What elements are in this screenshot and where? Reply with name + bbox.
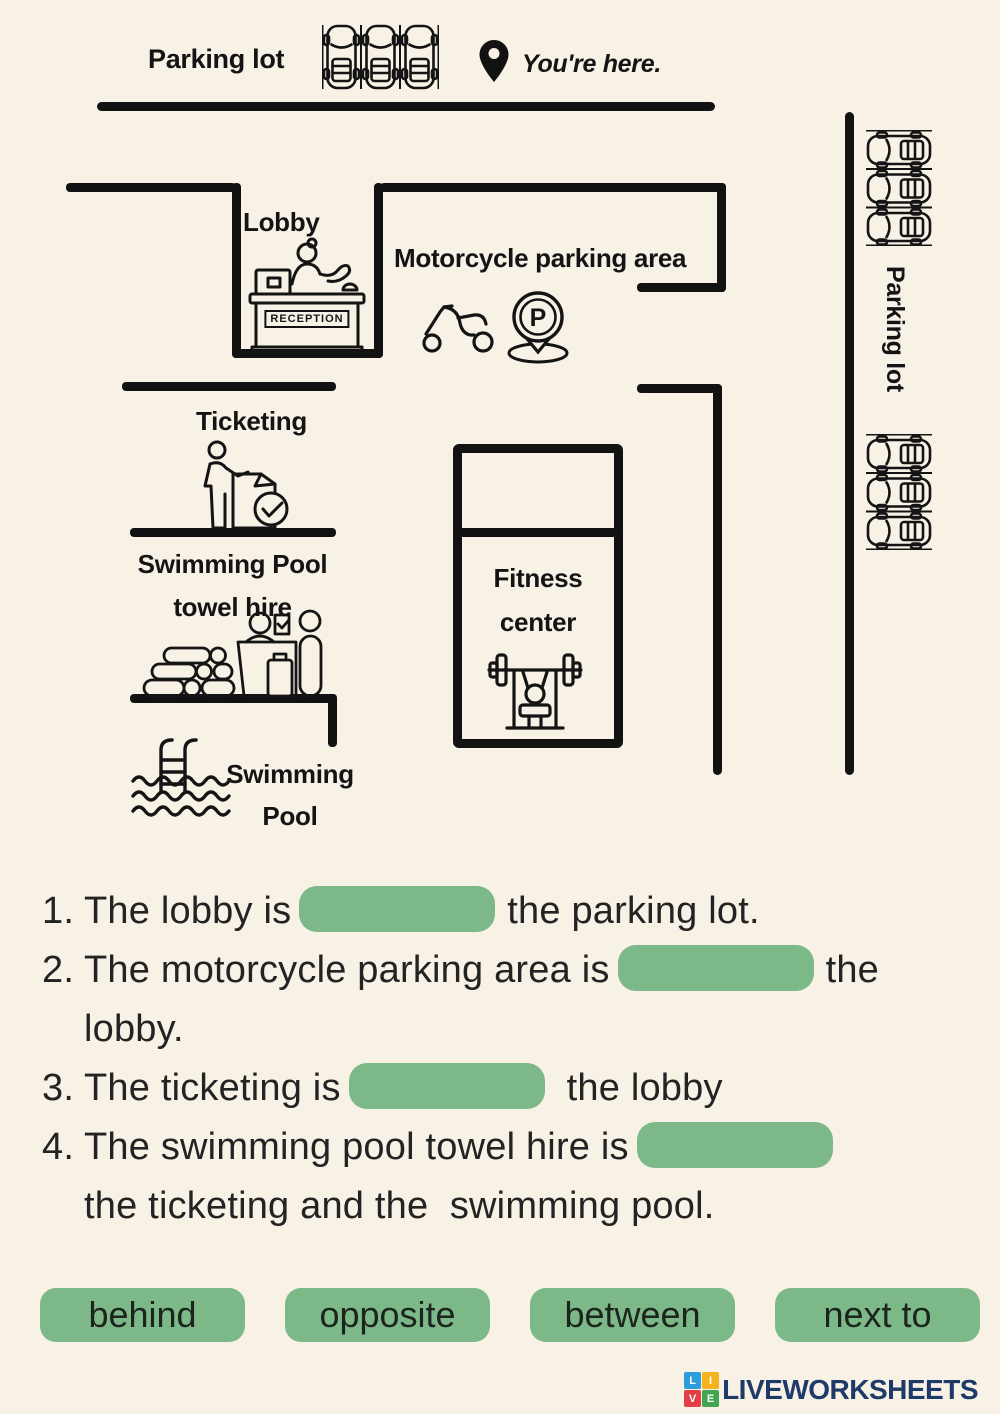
towel-hire-icon (142, 608, 327, 698)
questions-section: 1. The lobby isthe parking lot. 2. The m… (42, 882, 987, 1236)
answer-blank-4[interactable] (637, 1122, 833, 1168)
question-3: 3. The ticketing isthe lobby (42, 1059, 987, 1118)
cars-right-top-icon (865, 130, 933, 246)
wall-motorcycle-right (717, 183, 726, 292)
parking-lot-right-label: Parking lot (880, 266, 909, 416)
fitness-icon (487, 648, 583, 732)
question-2-pre: The motorcycle parking area is (84, 949, 610, 991)
question-2: 2. The motorcycle parking area isthe lob… (42, 941, 987, 1059)
wall-lobby-right (374, 183, 383, 358)
motorcycle-area-label: Motorcycle parking area (394, 243, 686, 274)
question-2-line2: lobby. (84, 1000, 987, 1059)
brand-text: LIVEWORKSHEETS (722, 1374, 978, 1406)
wall-motorcycle-top (380, 183, 726, 192)
wall-lobby-left (232, 183, 241, 358)
swimming-pool-label: Swimming Pool (226, 753, 354, 837)
wall-top-road (97, 102, 715, 111)
youre-here-label: You're here. (522, 50, 661, 79)
towel-hire-label-line1: Swimming Pool (130, 543, 335, 586)
liveworksheets-logo[interactable]: L I V E LIVEWORKSHEETS (684, 1372, 978, 1407)
brand-tile-v: V (684, 1390, 701, 1407)
brand-tile-e: E (702, 1390, 719, 1407)
parking-lot-top-label: Parking lot (148, 44, 284, 75)
fitness-label-line2: center (462, 600, 614, 644)
wall-motorcycle-bottom-right (637, 283, 726, 292)
question-3-post: the lobby (567, 1067, 723, 1109)
wall-fitness-divider (457, 528, 619, 537)
word-chip-behind[interactable]: behind (40, 1288, 245, 1342)
parking-sign-icon: P (505, 290, 571, 364)
answer-blank-1[interactable] (299, 886, 495, 932)
question-3-number: 3. (42, 1059, 84, 1118)
reception-sign: RECEPTION (264, 310, 349, 328)
word-chip-opposite[interactable]: opposite (285, 1288, 490, 1342)
scooter-icon (420, 296, 498, 354)
brand-tile-i: I (702, 1372, 719, 1389)
answer-blank-3[interactable] (349, 1063, 545, 1109)
swimming-pool-label-line2: Pool (226, 795, 354, 837)
question-3-text: The ticketing isthe lobby (84, 1059, 987, 1118)
wall-ticketing-top (122, 382, 336, 391)
wall-towel-bottom-corner (328, 694, 337, 747)
question-1: 1. The lobby isthe parking lot. (42, 882, 987, 941)
question-3-pre: The ticketing is (84, 1067, 341, 1109)
question-2-number: 2. (42, 941, 84, 1000)
fitness-center-label: Fitness center (462, 556, 614, 644)
wall-corridor-top (637, 384, 722, 393)
p-sign-letter: P (530, 304, 547, 332)
word-bank: behind opposite between next to (40, 1288, 980, 1342)
question-1-number: 1. (42, 882, 84, 941)
question-2-text: The motorcycle parking area isthe lobby. (84, 941, 987, 1059)
cars-right-bottom-icon (865, 434, 933, 550)
question-4-text: The swimming pool towel hire is the tick… (84, 1118, 987, 1236)
cars-top-icon (322, 24, 439, 90)
question-4-line2: the ticketing and the swimming pool. (84, 1177, 987, 1236)
question-1-text: The lobby isthe parking lot. (84, 882, 987, 941)
brand-tile-l: L (684, 1372, 701, 1389)
worksheet-page: Parking lot You're here. Lobby Motorcycl… (0, 0, 1000, 1414)
word-chip-between[interactable]: between (530, 1288, 735, 1342)
question-4-number: 4. (42, 1118, 84, 1177)
swimming-pool-icon (131, 734, 231, 820)
swimming-pool-label-line1: Swimming (226, 753, 354, 795)
question-4-pre: The swimming pool towel hire is (84, 1126, 629, 1168)
word-chip-next-to[interactable]: next to (775, 1288, 980, 1342)
wall-lobby-top-left (66, 183, 236, 192)
question-1-post: the parking lot. (507, 890, 759, 932)
answer-blank-2[interactable] (618, 945, 814, 991)
location-pin-icon (477, 38, 511, 84)
question-1-pre: The lobby is (84, 890, 291, 932)
lobby-label: Lobby (243, 207, 320, 238)
ticketing-icon (196, 440, 292, 532)
question-4: 4. The swimming pool towel hire is the t… (42, 1118, 987, 1236)
fitness-label-line1: Fitness (462, 556, 614, 600)
question-2-post: the (826, 949, 879, 991)
brand-tiles-icon: L I V E (684, 1372, 719, 1407)
ticketing-label: Ticketing (196, 406, 307, 437)
wall-corridor-right (713, 384, 722, 775)
wall-right-road (845, 112, 854, 775)
reception-desk-icon: RECEPTION (246, 236, 368, 354)
